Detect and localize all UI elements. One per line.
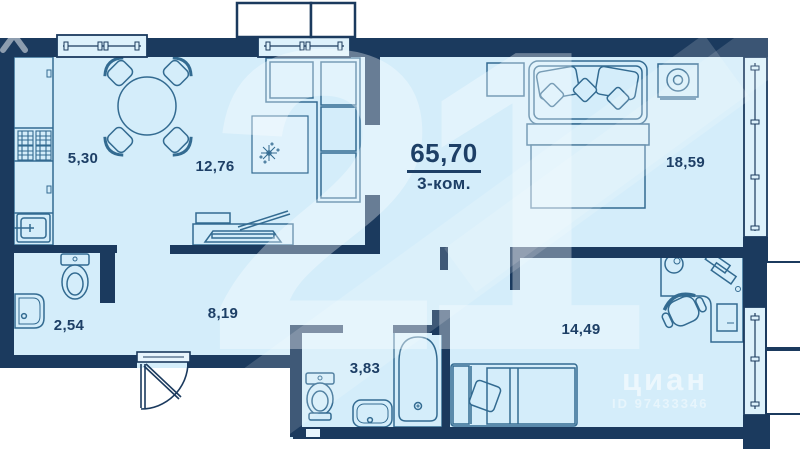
floor-plan: 21 5,30 12,76 18,59 8,19 2,54 3,83 14,49… [0, 0, 800, 449]
window-icon [258, 35, 350, 57]
brand-logo-icon [0, 0, 28, 56]
dining-table-icon [118, 77, 176, 135]
window-icon [57, 35, 147, 57]
total-area-block: 65,70 3-ком. [398, 138, 490, 194]
room-label-child-room: 14,49 [552, 321, 610, 338]
double-bed-icon [527, 61, 649, 208]
listing-id-watermark: ID 97433346 [612, 396, 708, 411]
window-icon [744, 57, 767, 237]
rug-plant-icon [252, 116, 308, 173]
room-label-kitchen: 5,30 [58, 150, 108, 167]
bedside-unit-icon [658, 64, 698, 99]
brand-watermark: циан [622, 362, 708, 398]
wash-basin-icon [353, 400, 392, 427]
total-area-label: 65,70 [407, 138, 481, 173]
window-icon [744, 307, 767, 415]
entrance-door-icon [137, 352, 190, 409]
wash-basin-icon [15, 294, 44, 328]
nightstand-icon [487, 63, 524, 96]
toilet-icon [61, 254, 89, 299]
toilet-icon [306, 373, 334, 420]
room-label-bathroom-small: 2,54 [44, 317, 94, 334]
room-label-living: 12,76 [185, 158, 245, 175]
bathtub-icon [394, 332, 442, 427]
room-label-bedroom: 18,59 [658, 154, 713, 171]
rooms-count-label: 3-ком. [398, 174, 490, 194]
room-label-hall: 8,19 [198, 305, 248, 322]
single-bed-icon [451, 364, 577, 426]
kitchen-sink-icon [14, 214, 50, 242]
room-label-bathroom-large: 3,83 [340, 360, 390, 377]
